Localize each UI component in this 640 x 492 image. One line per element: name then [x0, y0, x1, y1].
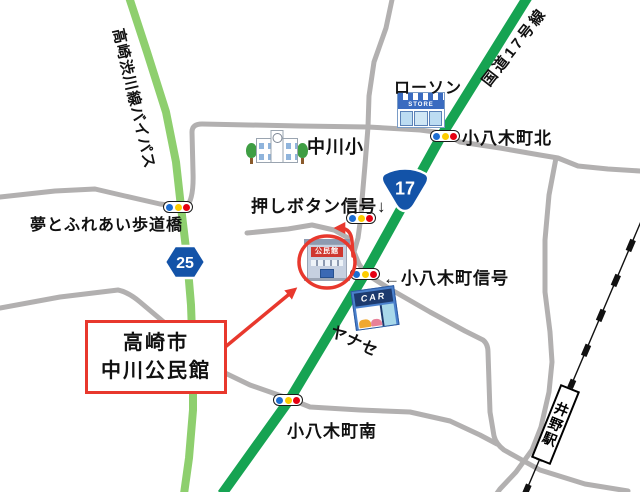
signal-red-lamp: [293, 397, 300, 404]
label-pedestrian-bridge: 夢とふれあい歩道橋: [30, 211, 183, 235]
signal-blue-lamp: [166, 204, 173, 211]
car-dealer-icon: CAR: [350, 285, 399, 331]
signal-blue-lamp: [433, 133, 440, 140]
traffic-signal-icon-north: [430, 130, 460, 142]
traffic-signal-icon-south: [273, 394, 303, 406]
route25-hexagon-number: 25: [176, 255, 194, 272]
store-window: [429, 111, 442, 126]
signal-blue-lamp: [353, 271, 360, 278]
elementary-school-icon: [246, 126, 308, 164]
label-lawson: ローソン: [394, 74, 462, 98]
route25-hexagon-icon: 25: [163, 243, 207, 281]
label-signal-north: 小八木町北: [462, 124, 552, 149]
road-yanase-street: [366, 274, 628, 491]
destination-line2: 中川公民館: [101, 357, 211, 385]
store-window: [400, 111, 413, 126]
store-front: [398, 109, 444, 128]
car-lot: [356, 305, 383, 329]
signal-red-lamp: [370, 271, 377, 278]
label-signal-main: ←小八木町信号: [383, 264, 509, 289]
signal-red-lamp: [183, 204, 190, 211]
building-door: [320, 269, 334, 278]
label-school: 中川小: [307, 133, 364, 159]
signal-yellow-lamp: [285, 397, 292, 404]
building-windows: [311, 260, 343, 266]
school-clock-tower: [271, 130, 284, 163]
signal-yellow-lamp: [362, 271, 369, 278]
signal-red-lamp: [450, 133, 457, 140]
car-icon: [359, 319, 372, 329]
clock-icon: [272, 133, 282, 143]
traffic-signal-icon-main: [350, 268, 380, 280]
route17-shield-number: 17: [395, 179, 415, 199]
access-map: 井野駅 17 25 STORE: [0, 0, 640, 492]
building-body: 公民館: [307, 244, 347, 279]
community-center-icon: 公民館: [304, 239, 350, 285]
destination-line1: 高崎市: [123, 329, 189, 357]
road-south-street: [0, 290, 497, 444]
destination-name-box: 高崎市 中川公民館: [85, 320, 227, 394]
label-push-button-signal: 押しボタン信号↓: [251, 192, 387, 217]
community-center-sign: 公民館: [311, 247, 343, 257]
signal-yellow-lamp: [175, 204, 182, 211]
signal-yellow-lamp: [442, 133, 449, 140]
route17-shield-icon: 17: [380, 167, 430, 213]
road-center-access: [247, 225, 350, 239]
store-door: [414, 111, 428, 126]
signal-blue-lamp: [276, 397, 283, 404]
car-icon: [371, 318, 383, 326]
label-signal-south: 小八木町南: [287, 417, 377, 442]
road-pedestrian-bridge-street: [0, 189, 186, 207]
store-sign: STORE: [398, 101, 444, 109]
